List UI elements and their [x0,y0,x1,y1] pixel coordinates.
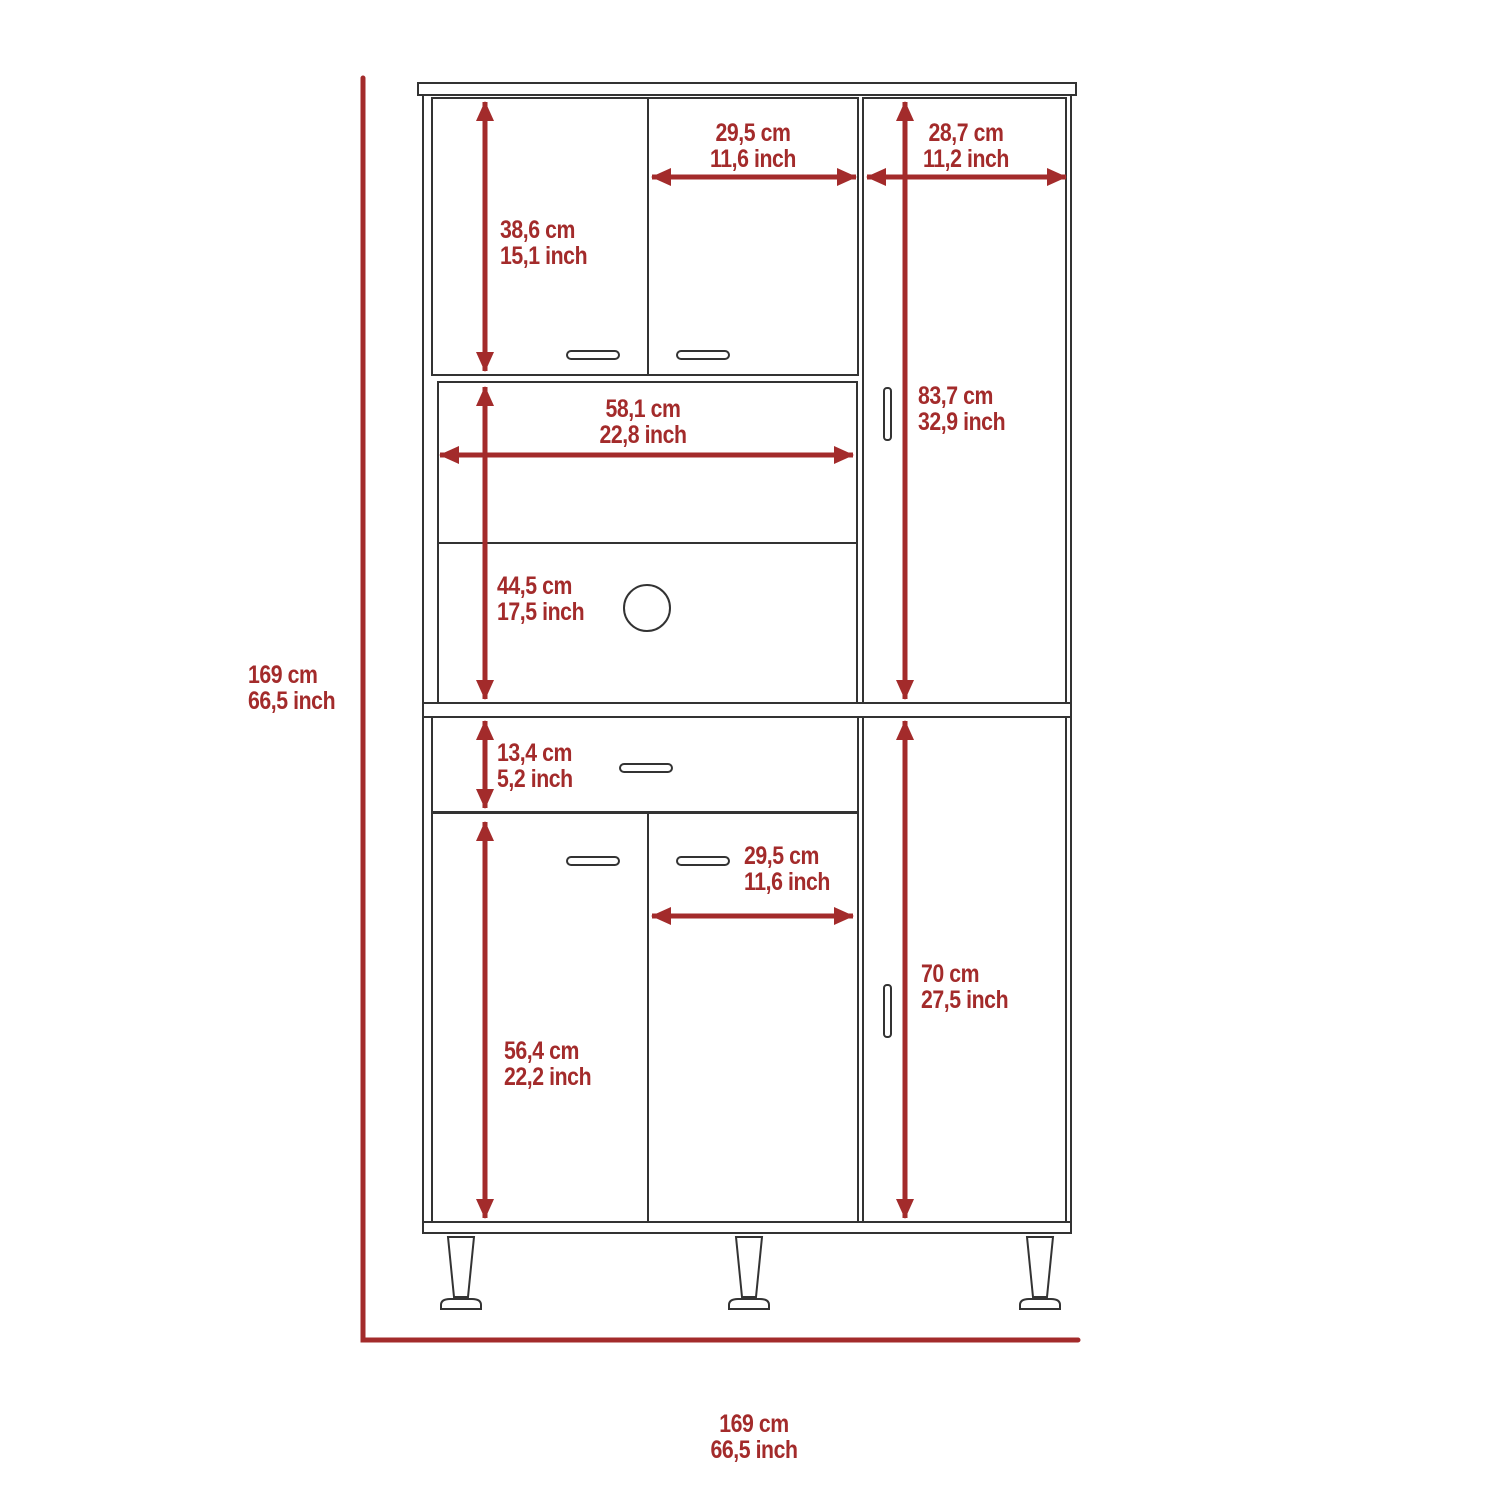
dim-inch: 22,2 inch [504,1064,591,1090]
dim-inch: 27,5 inch [921,987,1008,1013]
lower-left-door [432,813,648,1222]
lower-middle-door-handle-icon [677,857,729,865]
leg-right [1020,1237,1060,1309]
leg-middle [729,1237,769,1309]
dim-inch: 15,1 inch [500,243,587,269]
cabinet-line-drawing [0,0,1500,1499]
open-shelf-width-label: 58,1 cm 22,8 inch [567,396,720,448]
overall-width-inch: 66,5 inch [678,1437,831,1463]
overall-height-cm: 169 cm [248,662,335,688]
open-compartment-height-label: 44,5 cm 17,5 inch [497,573,584,625]
dim-inch: 5,2 inch [497,766,573,792]
drawer-handle-icon [620,764,672,772]
upper-right-section-width-label: 28,7 cm 11,2 inch [890,120,1043,172]
cable-hole [624,585,670,631]
dim-cm: 38,6 cm [500,217,587,243]
dim-inch: 32,9 inch [918,409,1005,435]
dim-cm: 28,7 cm [890,120,1043,146]
overall-width-cm: 169 cm [678,1411,831,1437]
cabinet-bottom-board [423,1222,1071,1233]
lower-middle-door-width-label: 29,5 cm 11,6 inch [744,843,830,895]
overall-height-inch: 66,5 inch [248,688,335,714]
lower-left-door-height-label: 56,4 cm 22,2 inch [504,1038,591,1090]
overall-width-label: 169 cm 66,5 inch [678,1411,831,1463]
drawer-height-label: 13,4 cm 5,2 inch [497,740,573,792]
dim-inch: 11,6 inch [677,146,830,172]
dim-cm: 44,5 cm [497,573,584,599]
dim-inch: 11,6 inch [744,869,830,895]
dim-cm: 29,5 cm [677,120,830,146]
cabinet-top-board [418,83,1076,95]
upper-middle-door-width-label: 29,5 cm 11,6 inch [677,120,830,172]
upper-left-door-handle-icon [567,351,619,359]
upper-left-door-height-label: 38,6 cm 15,1 inch [500,217,587,269]
dimension-diagram: 169 cm 66,5 inch 169 cm 66,5 inch 38,6 c… [0,0,1500,1499]
dim-cm: 83,7 cm [918,383,1005,409]
dim-inch: 11,2 inch [890,146,1043,172]
lower-left-door-handle-icon [567,857,619,865]
upper-right-door-handle-icon [884,388,891,440]
upper-right-door-height-label: 83,7 cm 32,9 inch [918,383,1005,435]
dim-inch: 17,5 inch [497,599,584,625]
lower-right-door-handle-icon [884,985,891,1037]
lower-right-door-height-label: 70 cm 27,5 inch [921,961,1008,1013]
dim-cm: 58,1 cm [567,396,720,422]
dim-cm: 70 cm [921,961,1008,987]
dim-cm: 29,5 cm [744,843,830,869]
mid-board [423,703,1071,717]
dim-inch: 22,8 inch [567,422,720,448]
leg-left [441,1237,481,1309]
dim-cm: 56,4 cm [504,1038,591,1064]
overall-height-label: 169 cm 66,5 inch [248,662,335,714]
dim-cm: 13,4 cm [497,740,573,766]
upper-middle-door-handle-icon [677,351,729,359]
